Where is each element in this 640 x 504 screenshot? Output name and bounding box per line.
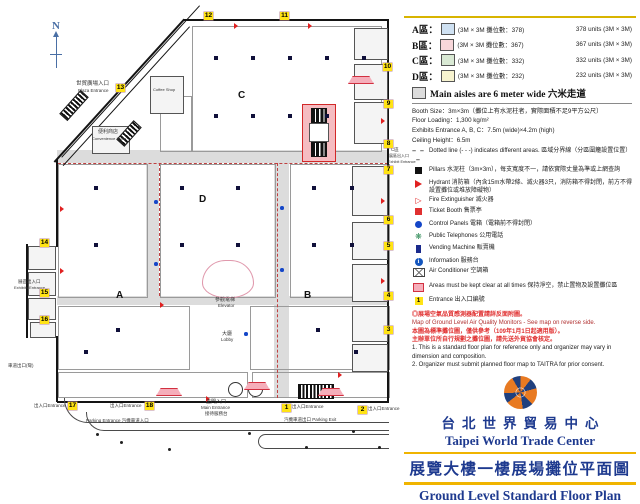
entrance-badge-7: 7: [384, 166, 393, 174]
spec-line: Ceiling Height：6.5m: [412, 136, 632, 146]
pillar-icon: [288, 56, 292, 60]
legend-specs: Booth Size：3m×3m（攤位上有水泥柱者，實際面積不足9平方公尺）Fl…: [412, 103, 632, 147]
legend-area-row: A區：(3M × 3M 攤位數：378)378 units (3M × 3M): [412, 22, 632, 36]
hydrant-icon: [381, 118, 385, 124]
plan-label: 車道出口(彎): [8, 364, 34, 369]
control-panel-icon: [280, 268, 284, 272]
legend-item-text: Fire Extinguisher 滅火器: [429, 197, 494, 207]
title-en: Taipei World Trade Center: [402, 433, 638, 449]
legend-item-text: Vending Machine 販賣機: [429, 245, 495, 257]
spec-line: Exhibits Entrance A, B, C：7.5m (wide)×4.…: [412, 126, 632, 136]
gold-bar-top: [404, 452, 636, 455]
title-zh: 台北世界貿易中心: [402, 412, 638, 432]
pillar-icon: [316, 328, 320, 332]
legend-area-count-en: 367 units (3M × 3M): [576, 41, 632, 48]
plan-label: Coffee Shop: [153, 88, 175, 92]
pillar-icon: [251, 114, 255, 118]
ticket-booth-area: [302, 104, 336, 162]
legend-item: ▷Fire Extinguisher 滅火器: [412, 197, 634, 207]
area-letter-A: A: [116, 290, 123, 301]
plan-label: 接待服務台: [205, 412, 228, 417]
entrance-badge-12: 12: [204, 12, 213, 20]
hydrant-icon: [308, 23, 312, 29]
control-panel-icon: [280, 206, 284, 210]
area-letter-D: D: [199, 194, 206, 205]
legend-item-text: Areas must be kept clear at all times 保持…: [429, 283, 617, 296]
legend-area-row: C區：(3M × 3M 攤位數：332)332 units (3M × 3M): [412, 53, 632, 67]
legend-item: 1Entrance 出入口編號: [412, 297, 634, 306]
pillar-icon: [180, 243, 184, 247]
outdoor-column-dot: [96, 433, 99, 436]
entrance-badge-6: 6: [384, 216, 393, 224]
legend-item-text: Public Telephones 公用電話: [429, 233, 503, 243]
control-panel-icon: [154, 200, 158, 204]
perimeter-room: [352, 166, 388, 216]
entrance-badge-10: 10: [383, 63, 392, 71]
entrance-badge-11: 11: [280, 12, 289, 20]
plan-label: 便利商店: [98, 130, 118, 135]
vending-machine-icon: [412, 245, 425, 257]
note-line: ◎展場空氣品質感測器配置請詳反面附圖。: [412, 311, 632, 319]
pillar-icon: [350, 243, 354, 247]
pillar-icon: [354, 350, 358, 354]
pillar-icon: [350, 186, 354, 190]
legend-item-text: Ticket Booth 售票亭: [429, 208, 482, 219]
panel-top-rule: [404, 16, 636, 18]
legend-area-count-en: 332 units (3M × 3M): [576, 57, 632, 64]
fire-extinguisher-icon: ▷: [412, 197, 425, 207]
hydrant-icon: [160, 302, 164, 308]
entrance-badge-14: 14: [40, 239, 49, 247]
spec-line: Floor Loading：1,300 kg/m²: [412, 116, 632, 126]
legend-area-row: B區：(3M × 3M 攤位數：367)367 units (3M × 3M): [412, 38, 632, 52]
plan-label: Convenience Store: [92, 137, 126, 141]
pillar-icon: [362, 56, 366, 60]
legend-area-count-en: 378 units (3M × 3M): [576, 26, 632, 33]
hydrant-icon: [338, 372, 342, 378]
aisle-note: Main aisles are 6 meter wide 六米走道: [430, 86, 586, 100]
pillar-icon: [288, 114, 292, 118]
perimeter-room: [352, 222, 388, 260]
visitor-elevator: [202, 260, 254, 298]
hydrant-icon: [234, 23, 238, 29]
legend-item: – – –Dotted line (- - -) indicates diffe…: [412, 148, 634, 166]
area-divider-dashed-line: [277, 163, 278, 398]
perimeter-room: [30, 322, 56, 338]
hydrant-icon: [412, 180, 425, 196]
entrance-badge-2: 2: [358, 406, 367, 414]
entrance-badge-4: 4: [384, 292, 393, 300]
legend-area-count-zh: (3M × 3M 攤位數：232): [458, 71, 524, 80]
legend-item-text: Entrance 出入口編號: [429, 297, 485, 306]
pillar-icon: [312, 243, 316, 247]
legend-aisle-row: Main aisles are 6 meter wide 六米走道: [412, 86, 632, 100]
wall: [56, 336, 58, 402]
note-line: 本圖為標準攤位圖，僅供參考（109年1月1日起適用版）。: [412, 328, 632, 336]
pillar-icon: [412, 167, 425, 178]
legend-item: Hydrant 消防箱（內含15m水帶2條、滅火器3只，消防箱不得封閉，前方不得…: [412, 180, 634, 196]
hydrant-icon: [381, 278, 385, 284]
plan-label: Plaza Entrance: [78, 89, 109, 94]
pillar-icon: [94, 186, 98, 190]
legend-area-swatch: [440, 39, 454, 51]
legend-area-row: D區：(3M × 3M 攤位數：232)232 units (3M × 3M): [412, 69, 632, 83]
subtitle-en: Ground Level Standard Floor Plan: [402, 488, 638, 504]
twtc-globe-logo-icon: [504, 376, 537, 409]
pillar-icon: [94, 243, 98, 247]
pillar: [311, 142, 327, 157]
note-line: Map of Ground Level Air Quality Monitors…: [412, 319, 632, 327]
ticket-booth-icon: [412, 208, 425, 219]
booth-block-area-A: [58, 372, 248, 398]
outdoor-column-dot: [120, 441, 123, 444]
entrance-badge-8: 8: [384, 140, 393, 148]
legend-area-count-en: 232 units (3M × 3M): [576, 72, 632, 79]
pillar-icon: [180, 186, 184, 190]
page: { "title": { "zh": "台北世界貿易中心", "en": "Ta…: [0, 0, 640, 462]
hydrant-icon: [60, 206, 64, 212]
entrance-badge-3: 3: [384, 326, 393, 334]
area-divider-dashed-line: [159, 163, 160, 296]
legend-notes: ◎展場空氣品質感測器配置請詳反面附圖。Map of Ground Level A…: [412, 311, 632, 370]
information-icon: i: [412, 258, 425, 267]
entrance-badge-1: 1: [282, 404, 291, 412]
perimeter-room: [352, 306, 388, 342]
legend-item: Ticket Booth 售票亭: [412, 208, 634, 219]
plan-label: Elevator: [218, 304, 235, 309]
entrance-badge-15: 15: [40, 289, 49, 297]
legend-item-text: Pillars 水泥柱（3m×3m），每支寬度不一，請依實際丈量為準或上網查詢: [429, 167, 620, 178]
plan-label: 出入口Entrance: [292, 405, 324, 410]
legend-item-text: Dotted line (- - -) indicates different …: [429, 148, 631, 166]
aisle-swatch: [412, 87, 426, 99]
keep-clear-icon: [412, 283, 425, 296]
legend-item-text: Information 服務台: [429, 258, 479, 267]
spec-line: Booth Size：3m×3m（攤位上有水泥柱者，實際面積不足9平方公尺）: [412, 107, 632, 117]
legend-item: Vending Machine 販賣機: [412, 245, 634, 257]
note-line: 主辦單位所自行規劃之攤位圖，請先送外貿協會核定。: [412, 336, 632, 344]
pillar-icon: [214, 114, 218, 118]
pillar-icon: [251, 56, 255, 60]
legend-area-swatch: [441, 70, 455, 82]
plan-label: C區: [391, 148, 399, 153]
pillar-icon: [325, 56, 329, 60]
subtitle-zh: 展覽大樓一樓展場攤位平面圖: [402, 457, 638, 479]
legend-area-name: D區：: [412, 69, 438, 83]
legend-area-swatch: [441, 54, 455, 66]
control-panel-icon: [412, 221, 425, 232]
note-line: 2. Organizer must submit planned floor m…: [412, 361, 632, 369]
stairs-escalator: [59, 90, 89, 121]
plan-label: 汽機車道出口 Parking Exit: [284, 418, 336, 423]
pillar-icon: [312, 186, 316, 190]
legend-item: Pillars 水泥柱（3m×3m），每支寬度不一，請依實際丈量為準或上網查詢: [412, 167, 634, 178]
hydrant-icon: [60, 268, 64, 274]
hydrant-icon: [381, 198, 385, 204]
plan-label: 世貿廣場入口: [76, 82, 109, 88]
legend-panel: A區：(3M × 3M 攤位數：378)378 units (3M × 3M)B…: [402, 0, 638, 462]
legend-item: ❋Public Telephones 公用電話: [412, 233, 634, 243]
outdoor-column-dot: [248, 432, 251, 435]
pillar-icon: [84, 350, 88, 354]
gold-bar-bottom: [404, 482, 636, 485]
legend-area-swatch: [441, 23, 455, 35]
legend-item-text: Hydrant 消防箱（內含15m水帶2條、滅火器3只，消防箱不得封閉，前方不得…: [429, 180, 634, 196]
plan-label: 展區出入口: [18, 280, 41, 285]
legend-item: Air Conditioner 空調箱: [412, 268, 634, 281]
wall: [56, 159, 58, 247]
plan-label: Lobby: [221, 338, 233, 343]
legend-item-text: Air Conditioner 空調箱: [429, 268, 488, 281]
legend-area-count-zh: (3M × 3M 攤位數：367): [457, 40, 523, 49]
area-divider-dashed-line: [58, 163, 388, 164]
parking-driveway: [258, 434, 389, 449]
revolving-door-icon: [228, 382, 243, 397]
compass-north-icon: N: [46, 20, 66, 70]
pillar-icon: [236, 186, 240, 190]
telephone-icon: ❋: [412, 233, 425, 243]
entrance-badge-18: 18: [145, 402, 154, 410]
entrance-badge-5: 5: [384, 242, 393, 250]
entrance-badge-9: 9: [384, 100, 393, 108]
pillar-icon: [214, 56, 218, 60]
perimeter-room: [352, 344, 388, 372]
area-letter-C: C: [238, 90, 245, 101]
legend-item: iInformation 服務台: [412, 258, 634, 267]
perimeter-room: [150, 76, 184, 114]
legend-item: Control Panels 電箱（電箱前不得封閉）: [412, 221, 634, 232]
legend-item: Areas must be kept clear at all times 保持…: [412, 283, 634, 296]
title-block: 台北世界貿易中心 Taipei World Trade Center 展覽大樓一…: [402, 376, 638, 504]
outdoor-column-dot: [352, 430, 355, 433]
booth-block-area-A: [58, 306, 190, 370]
plan-label: 出入口Entrance: [368, 407, 400, 412]
entrance-badge-17: 17: [68, 402, 77, 410]
outdoor-column-dot: [378, 446, 381, 449]
legend-areas: A區：(3M × 3M 攤位數：378)378 units (3M × 3M)B…: [402, 22, 638, 83]
perimeter-room: [28, 246, 56, 270]
pillar-icon: [325, 114, 329, 118]
pillar-icon: [116, 328, 120, 332]
plan-label: Main Entrance: [201, 406, 230, 411]
entrance-badge-13: 13: [116, 84, 125, 92]
legend-area-count-zh: (3M × 3M 攤位數：378): [458, 25, 524, 34]
floor-plan: N ABCD世貿廣場入口Plaza EntranceCoffee Shop便利商…: [0, 0, 398, 462]
plan-label: 出入口Entrance: [110, 404, 142, 409]
legend-area-name: C區：: [412, 53, 438, 67]
legend-item-text: Control Panels 電箱（電箱前不得封閉）: [429, 221, 536, 232]
legend-area-count-zh: (3M × 3M 攤位數：332): [458, 56, 524, 65]
pillar-icon: [236, 243, 240, 247]
entrance-badge-16: 16: [40, 316, 49, 324]
booth-block-area-A: [58, 164, 148, 298]
legend-area-name: A區：: [412, 22, 438, 36]
control-panel-icon: [244, 332, 248, 336]
air-conditioner-icon: [412, 268, 425, 281]
note-line: 1. This is a standard floor plan for ref…: [412, 344, 632, 361]
control-panel-icon: [154, 262, 158, 266]
plan-label: 出入口Entrance: [34, 404, 66, 409]
perimeter-room: [354, 28, 388, 60]
dotted-line-icon: – – –: [412, 148, 425, 166]
outdoor-column-dot: [168, 448, 171, 451]
entrance-badge-icon: 1: [412, 297, 425, 306]
outdoor-column-dot: [305, 446, 308, 449]
service-center-core: [309, 123, 329, 142]
legend-area-name: B區：: [412, 38, 437, 52]
plan-label: Parking Entrance 汽機車道入口: [86, 419, 149, 424]
area-letter-B: B: [304, 290, 311, 301]
legend-items: – – –Dotted line (- - -) indicates diffe…: [402, 148, 638, 306]
